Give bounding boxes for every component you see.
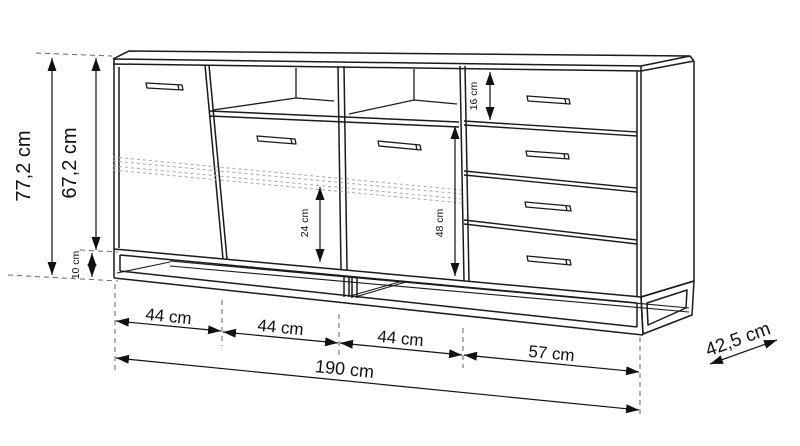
left-door-handle [146, 83, 183, 90]
plinth-height-label: 10 cm [70, 250, 82, 279]
right-inner-height-label: 48 cm [434, 208, 446, 237]
open-shelf-left [213, 68, 334, 110]
left-inner-height-label: 24 cm [299, 208, 311, 237]
drawer-gaps [464, 121, 637, 244]
base-frame-back-rails [117, 261, 689, 312]
cabinet-top-panel [113, 51, 694, 71]
dim-total-width-line [116, 358, 639, 410]
depth-label: 42,5 cm [703, 318, 774, 361]
drawer-4-handle [527, 256, 571, 265]
hidden-shelf-lines [113, 157, 462, 203]
drawer-2-handle [526, 151, 569, 159]
metal-base-frame [114, 255, 694, 335]
dimension-lines [52, 58, 777, 410]
sideboard-technical-drawing: 77,2 cm 67,2 cm 10 cm 16 cm 24 cm 48 cm … [0, 0, 800, 446]
open-shelf-right [349, 69, 457, 114]
drawer-3-handle [525, 202, 571, 211]
body-height-label: 67,2 cm [59, 127, 81, 198]
top-drawer-height-label: 16 cm [468, 81, 480, 110]
total-height-label: 77,2 cm [13, 130, 35, 201]
cabinet-carcass [114, 59, 694, 297]
middle-right-door-handle [378, 141, 421, 150]
dimension-labels: 77,2 cm 67,2 cm 10 cm 16 cm 24 cm 48 cm … [13, 81, 773, 381]
drawer-1-handle [527, 96, 570, 104]
furniture-dimension-diagram: 77,2 cm 67,2 cm 10 cm 16 cm 24 cm 48 cm … [0, 0, 800, 446]
middle-left-door-handle [257, 136, 296, 144]
